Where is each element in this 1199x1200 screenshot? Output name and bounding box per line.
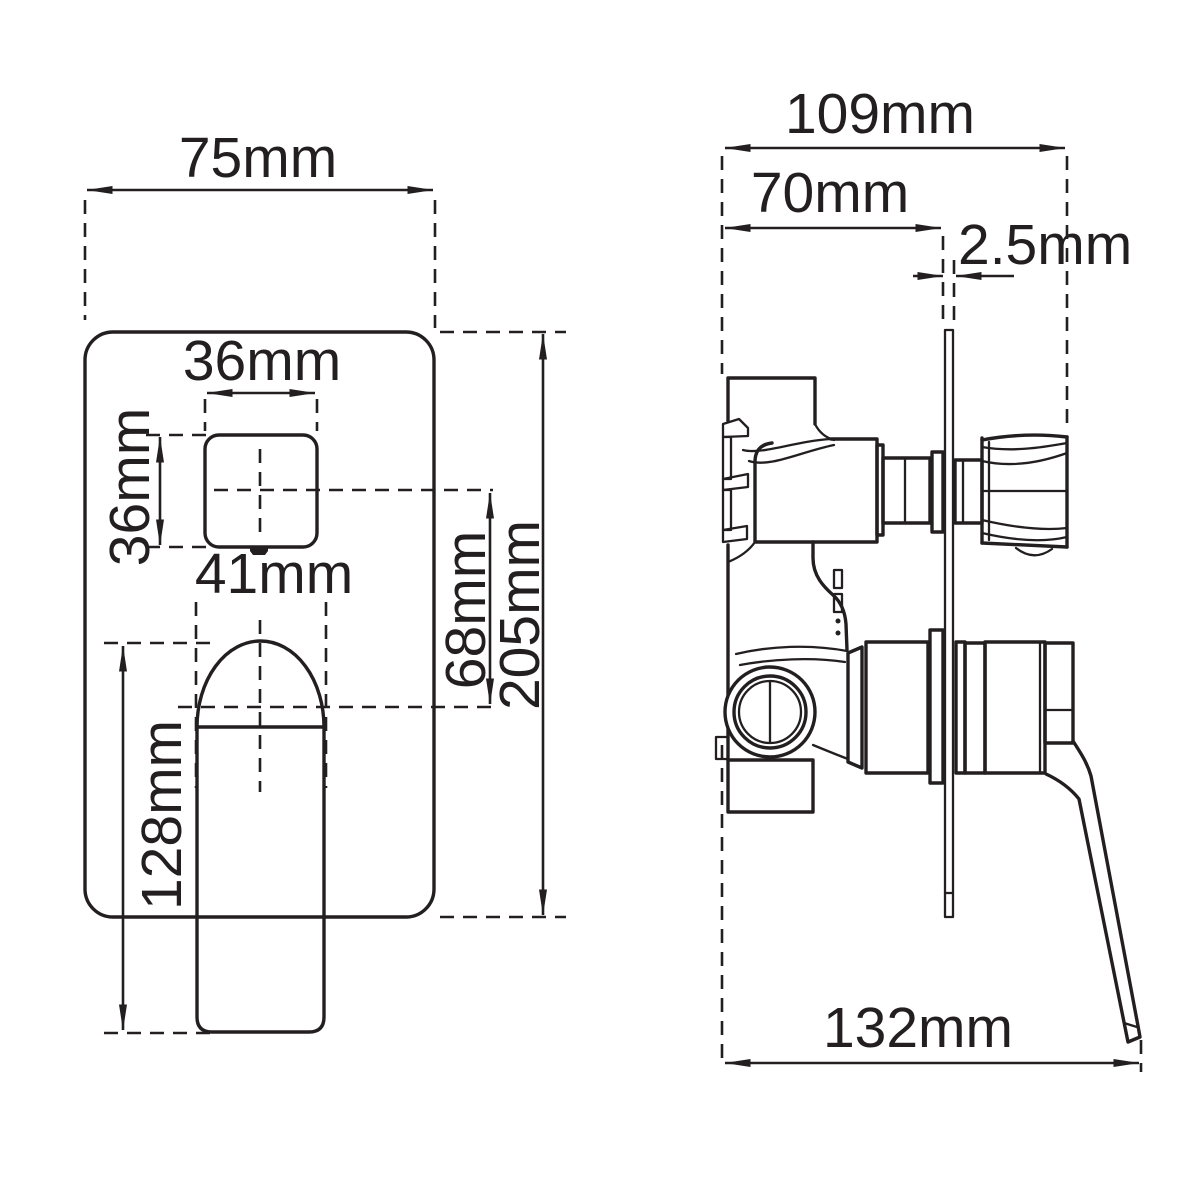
cartridge-ring [848, 647, 862, 768]
side-view: 109mm 70mm 2.5mm 132mm [716, 82, 1141, 1072]
cartridge-flange [930, 630, 943, 783]
mounting-lug-foot [723, 526, 747, 542]
side-lever-handle [1046, 741, 1140, 1042]
knob-spacer [955, 460, 982, 523]
side-wall-plate [945, 330, 953, 917]
dim-label-41mm: 41mm [195, 542, 353, 606]
stem-washer [932, 452, 943, 532]
knob-top-edge [982, 435, 1067, 440]
dim-label-75mm: 75mm [179, 126, 337, 190]
neck-detail-dot-2 [836, 631, 841, 636]
upper-port [728, 378, 815, 424]
dim-plate-thickness: 2.5mm [913, 213, 1132, 277]
bottom-block [728, 760, 813, 812]
dim-button-width: 36mm [183, 329, 341, 431]
knob-grip-curve-4 [982, 533, 1067, 540]
dim-label-36mm-height: 36mm [98, 408, 162, 566]
drawing-canvas: 75mm 36mm 36mm 41mm 68mm [0, 0, 1199, 1200]
mounting-lug-strip-upper [723, 437, 731, 479]
hub-trim-2 [965, 643, 985, 773]
knob-bottom-edge [982, 543, 1067, 547]
dim-label-132mm: 132mm [823, 996, 1013, 1060]
dim-total-depth: 109mm [725, 82, 1065, 148]
dim-label-70mm: 70mm [751, 161, 909, 225]
dim-label-36mm-width: 36mm [183, 329, 341, 393]
boss-shoulder-curve-2 [740, 659, 845, 665]
knob-grip-curve-3 [982, 520, 1067, 529]
mounting-lug-strip-lower [723, 490, 731, 530]
dim-button-height: 36mm [98, 408, 209, 566]
front-lever-body [197, 727, 324, 1032]
dim-label-128mm: 128mm [130, 720, 194, 910]
neck-detail-screw-1 [834, 570, 842, 588]
diverter-block [755, 439, 877, 542]
neck-detail-dot-1 [836, 619, 841, 624]
mounting-lug-top [723, 419, 748, 437]
knob-bottom-bump [1016, 548, 1052, 555]
diverter-stem [883, 458, 930, 523]
mounting-lug-mid [723, 474, 748, 490]
hub-body [985, 642, 1045, 773]
cartridge-body [866, 642, 928, 773]
hub-cap [1045, 643, 1073, 743]
knob-grip-curve-2 [982, 453, 1067, 464]
dim-label-2p5mm: 2.5mm [958, 213, 1132, 277]
dim-front-plate-width: 75mm [85, 126, 435, 328]
boss-shoulder-curve-1 [736, 647, 847, 654]
neck-left-curve [728, 542, 755, 562]
knob-grip-curve-1 [982, 443, 1067, 449]
boss-to-cartridge-curve [813, 745, 848, 759]
dim-rough-in-depth: 70mm [725, 161, 941, 228]
dim-label-109mm: 109mm [785, 82, 975, 146]
diverter-knob [982, 435, 1067, 555]
dim-label-205mm: 205mm [488, 520, 552, 710]
technical-drawing: 75mm 36mm 36mm 41mm 68mm [0, 0, 1199, 1200]
dim-handle-reach: 132mm [725, 996, 1139, 1063]
front-view: 75mm 36mm 36mm 41mm 68mm [85, 126, 566, 1033]
